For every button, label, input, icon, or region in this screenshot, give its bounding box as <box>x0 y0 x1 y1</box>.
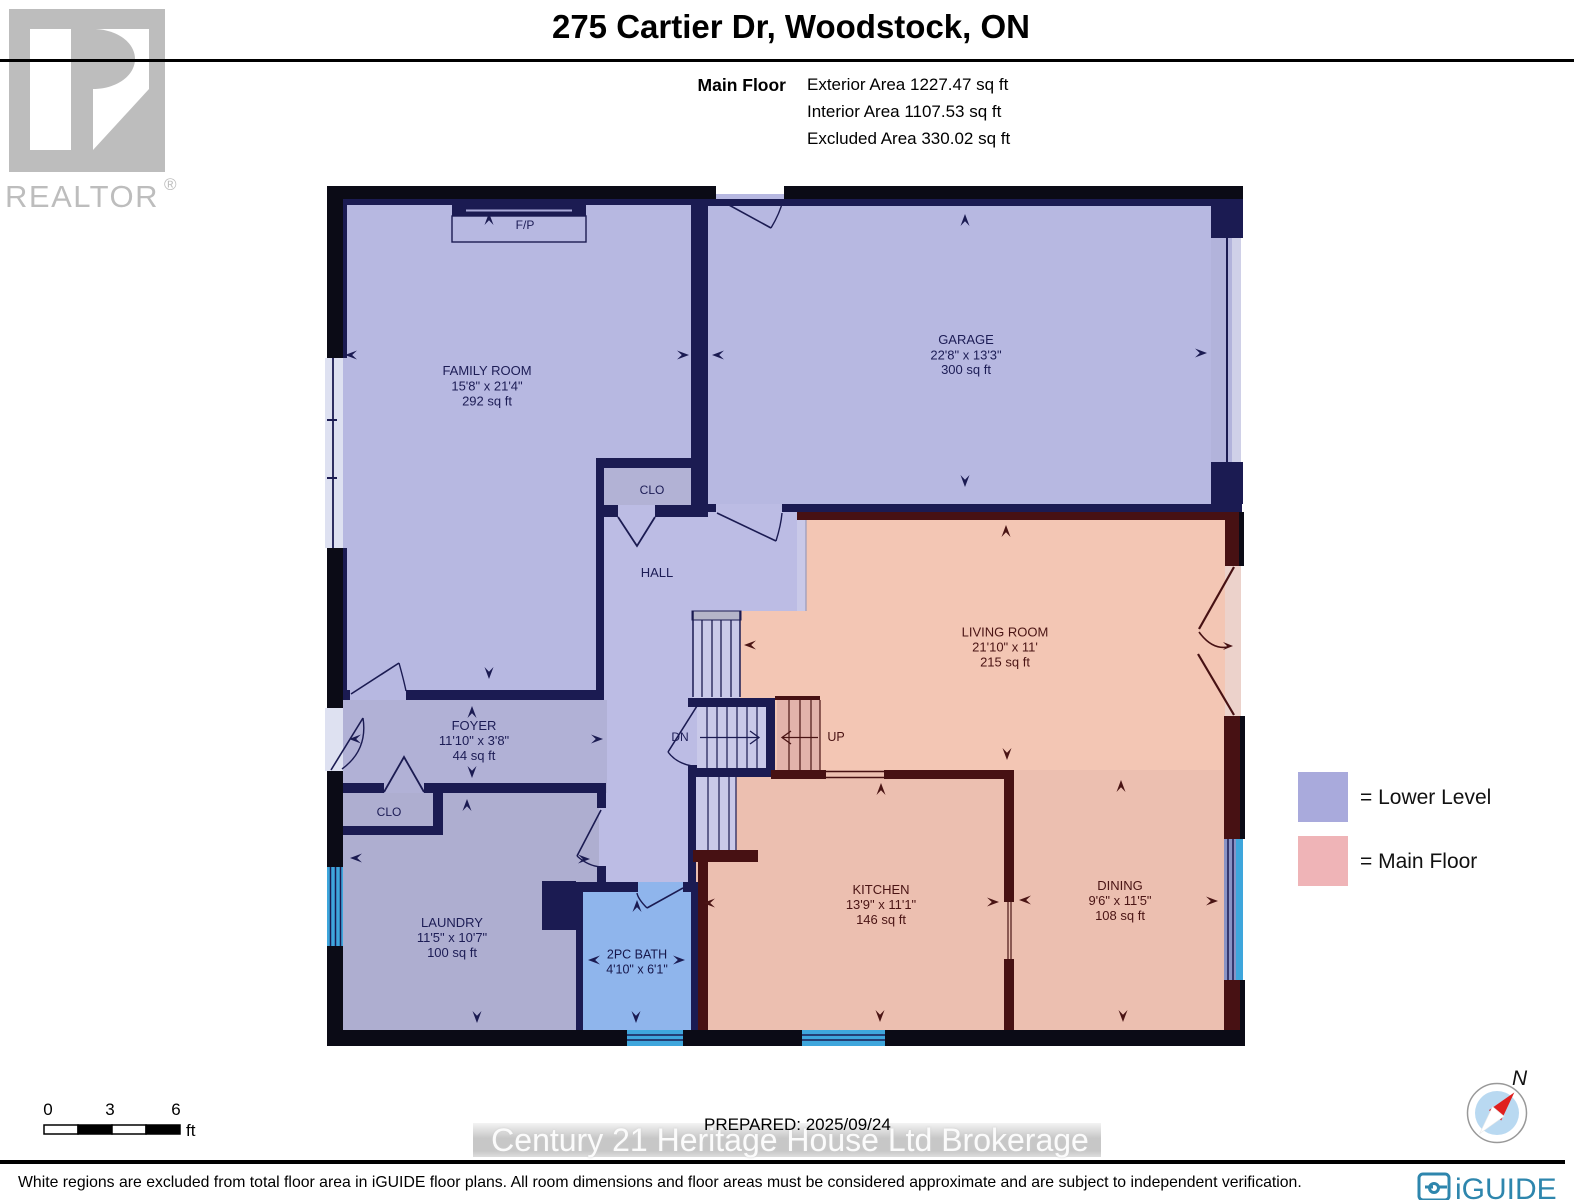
svg-text:DINING: DINING <box>1097 878 1143 893</box>
svg-text:215 sq ft: 215 sq ft <box>980 655 1030 670</box>
svg-text:44 sq ft: 44 sq ft <box>453 748 496 763</box>
svg-text:22'8" x 13'3": 22'8" x 13'3" <box>930 348 1002 363</box>
svg-text:DN: DN <box>671 730 688 744</box>
svg-text:KITCHEN: KITCHEN <box>852 882 909 897</box>
svg-text:6: 6 <box>171 1100 180 1119</box>
svg-text:CLO: CLO <box>377 805 402 819</box>
svg-text:100 sq ft: 100 sq ft <box>427 945 477 960</box>
svg-text:LAUNDRY: LAUNDRY <box>421 915 483 930</box>
svg-text:9'6" x 11'5": 9'6" x 11'5" <box>1088 893 1151 908</box>
svg-text:3: 3 <box>105 1100 114 1119</box>
svg-text:iGUIDE: iGUIDE <box>1455 1173 1557 1200</box>
svg-text:GARAGE: GARAGE <box>938 332 994 347</box>
svg-text:F/P: F/P <box>516 218 535 232</box>
svg-text:0: 0 <box>43 1100 52 1119</box>
svg-text:N: N <box>1512 1067 1528 1090</box>
svg-text:HALL: HALL <box>641 565 674 580</box>
svg-text:292 sq ft: 292 sq ft <box>462 394 512 409</box>
svg-text:2PC BATH: 2PC BATH <box>607 948 667 962</box>
svg-text:LIVING ROOM: LIVING ROOM <box>962 625 1049 640</box>
svg-text:ft: ft <box>186 1121 196 1140</box>
svg-text:11'10" x 3'8": 11'10" x 3'8" <box>439 733 510 748</box>
svg-text:UP: UP <box>827 730 844 744</box>
svg-text:108 sq ft: 108 sq ft <box>1095 908 1145 923</box>
svg-text:FAMILY ROOM: FAMILY ROOM <box>442 363 531 378</box>
svg-text:CLO: CLO <box>640 483 665 497</box>
svg-text:13'9" x 11'1": 13'9" x 11'1" <box>846 897 917 912</box>
svg-text:4'10" x 6'1": 4'10" x 6'1" <box>606 963 668 977</box>
svg-text:21'10" x 11': 21'10" x 11' <box>972 640 1038 655</box>
svg-text:146 sq ft: 146 sq ft <box>856 912 906 927</box>
svg-text:15'8" x 21'4": 15'8" x 21'4" <box>451 379 523 394</box>
svg-text:FOYER: FOYER <box>452 718 497 733</box>
svg-text:11'5" x 10'7": 11'5" x 10'7" <box>417 930 488 945</box>
svg-text:300 sq ft: 300 sq ft <box>941 362 991 377</box>
